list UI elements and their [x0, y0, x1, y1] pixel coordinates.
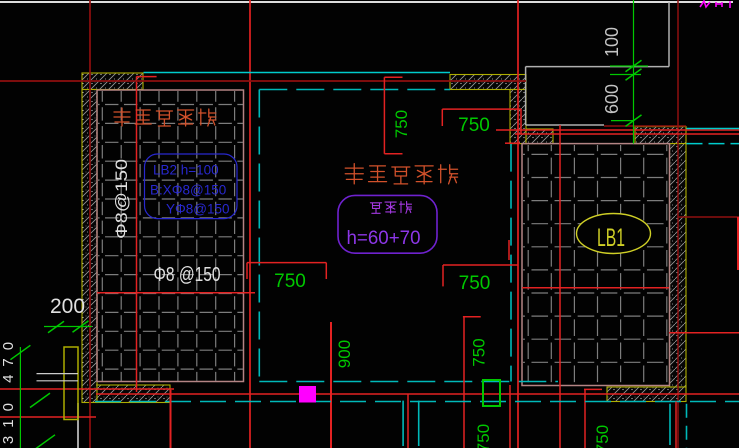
svg-text:LB2 h=100: LB2 h=100	[153, 163, 219, 178]
svg-text:750: 750	[474, 424, 493, 448]
svg-text:750: 750	[470, 338, 489, 366]
svg-text:Φ8 @150: Φ8 @150	[154, 264, 221, 286]
svg-text:h=60+70: h=60+70	[347, 228, 421, 249]
svg-text:310 470: 310 470	[0, 334, 17, 444]
svg-text:100: 100	[602, 27, 622, 57]
svg-text:750: 750	[458, 115, 490, 136]
svg-text:B:XΦ8@150: B:XΦ8@150	[150, 183, 226, 198]
svg-text:200: 200	[50, 295, 85, 318]
svg-text:750: 750	[593, 425, 612, 448]
svg-text:LB1: LB1	[597, 224, 625, 252]
svg-text:Φ8@150: Φ8@150	[112, 159, 131, 239]
svg-text:750: 750	[274, 271, 306, 292]
svg-text:750: 750	[392, 110, 411, 138]
svg-text:600: 600	[602, 84, 622, 114]
svg-text:750: 750	[459, 273, 491, 294]
svg-text:900: 900	[335, 340, 354, 368]
svg-text:YΦ8@150: YΦ8@150	[166, 202, 230, 217]
